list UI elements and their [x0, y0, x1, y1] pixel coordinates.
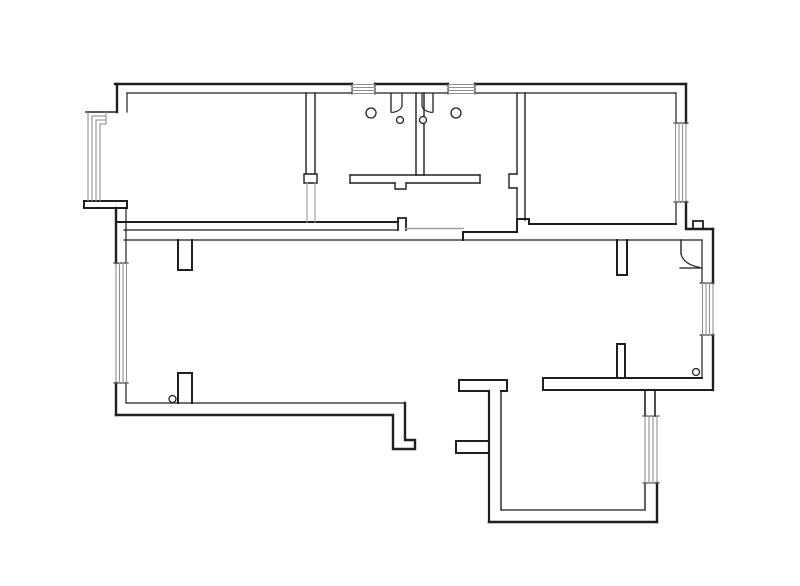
bathroom-west-jog — [304, 174, 317, 183]
bathroom-east-jog — [509, 174, 517, 188]
pier-southwest — [178, 373, 192, 403]
right-wall-upper-outer — [686, 202, 713, 229]
fixture-circle — [420, 117, 427, 124]
fixture-circle — [366, 108, 376, 118]
pier-northeast — [617, 240, 627, 275]
door-swing-arc — [392, 106, 403, 113]
kitchen-stub — [456, 441, 489, 453]
dining-south-wall — [543, 378, 702, 390]
entry-post — [398, 218, 406, 230]
floor-plan-drawing — [0, 0, 800, 586]
floor-plan-page — [0, 0, 800, 586]
door-swing-arc — [681, 254, 700, 268]
fixture-circle — [169, 396, 176, 403]
kitchen-cap — [459, 380, 507, 391]
big-room-south-outer — [116, 403, 415, 449]
fixture-circle — [451, 108, 461, 118]
bathroom-south-tab — [395, 183, 406, 189]
pier-northwest — [178, 240, 192, 270]
bay-window-sill — [84, 201, 127, 208]
fixture-circle — [693, 369, 700, 376]
mid-band-right — [463, 219, 676, 240]
pier-southeast — [617, 344, 625, 378]
fixture-circle — [397, 117, 404, 124]
